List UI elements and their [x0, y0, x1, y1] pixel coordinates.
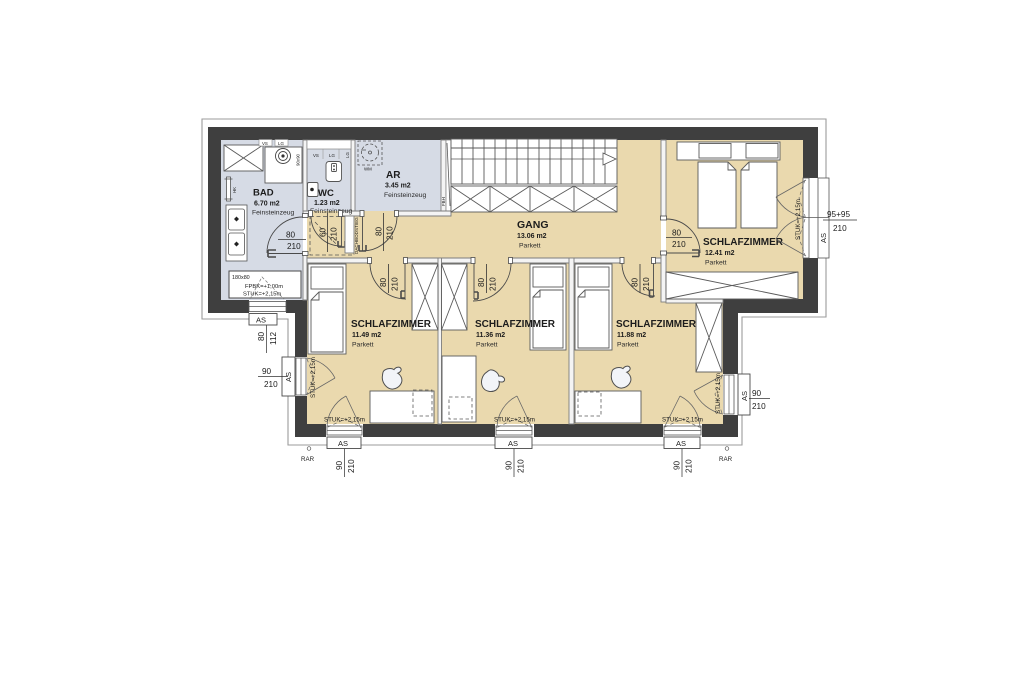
- svg-text:210: 210: [517, 459, 526, 473]
- svg-text:6.70 m2: 6.70 m2: [254, 201, 280, 208]
- svg-text:80: 80: [672, 229, 682, 238]
- svg-text:AS: AS: [256, 316, 266, 325]
- svg-text:AS: AS: [819, 233, 828, 243]
- svg-text:AS: AS: [284, 372, 293, 382]
- svg-text:1.23 m2: 1.23 m2: [314, 200, 340, 207]
- svg-text:VS: VS: [313, 153, 319, 158]
- svg-text:60: 60: [319, 227, 328, 237]
- svg-text:210: 210: [642, 277, 651, 291]
- svg-text:STUK=+2,15m: STUK=+2,15m: [795, 199, 802, 240]
- svg-text:90: 90: [505, 460, 514, 470]
- svg-text:VS: VS: [262, 141, 268, 146]
- svg-text:210: 210: [752, 402, 766, 411]
- svg-text:STUK=+2,15m: STUK=+2,15m: [662, 417, 703, 424]
- svg-text:210: 210: [489, 277, 498, 291]
- svg-text:STUK=+2,15m: STUK=+2,15m: [494, 417, 535, 424]
- svg-text:210: 210: [391, 277, 400, 291]
- svg-text:80: 80: [379, 277, 388, 287]
- svg-text:3.45 m2: 3.45 m2: [385, 183, 411, 190]
- svg-text:AS: AS: [508, 439, 518, 448]
- svg-text:SCHLAFZIMMER: SCHLAFZIMMER: [703, 237, 784, 248]
- svg-text:SCHLAFZIMMER: SCHLAFZIMMER: [475, 319, 556, 330]
- svg-text:90: 90: [335, 460, 344, 470]
- svg-text:SCHLAFZIMMER: SCHLAFZIMMER: [616, 319, 697, 330]
- svg-text:210: 210: [330, 227, 339, 241]
- svg-text:FBH: FBH: [441, 197, 446, 206]
- svg-text:WC: WC: [318, 188, 334, 199]
- svg-text:RAR: RAR: [719, 456, 733, 463]
- svg-text:Parkett: Parkett: [476, 342, 498, 349]
- svg-text:80: 80: [257, 331, 266, 341]
- svg-text:Feinsteinzeug: Feinsteinzeug: [310, 208, 353, 215]
- svg-text:FPBK=+1,00m: FPBK=+1,00m: [245, 284, 283, 290]
- svg-text:210: 210: [672, 240, 686, 249]
- svg-text:11.36 m2: 11.36 m2: [476, 332, 505, 339]
- svg-text:LG: LG: [345, 152, 350, 158]
- svg-text:STUK=+2,15m: STUK=+2,15m: [715, 373, 722, 414]
- svg-text:RAR: RAR: [301, 456, 315, 463]
- svg-text:Feinsteinzeug: Feinsteinzeug: [384, 192, 427, 199]
- svg-text:112: 112: [269, 332, 278, 345]
- svg-text:GANG: GANG: [517, 219, 549, 231]
- svg-text:WM: WM: [364, 167, 372, 172]
- svg-text:Parkett: Parkett: [705, 260, 727, 267]
- svg-text:90: 90: [752, 389, 762, 398]
- svg-text:210: 210: [287, 242, 301, 251]
- svg-text:LG: LG: [329, 153, 335, 158]
- svg-text:11.49 m2: 11.49 m2: [352, 332, 381, 339]
- svg-text:80: 80: [477, 277, 486, 287]
- svg-text:13.06 m2: 13.06 m2: [517, 233, 547, 240]
- svg-text:Feinsteinzeug: Feinsteinzeug: [252, 210, 295, 217]
- svg-text:210: 210: [347, 459, 356, 473]
- svg-text:Parkett: Parkett: [519, 243, 541, 250]
- svg-text:210: 210: [386, 226, 395, 240]
- svg-text:90: 90: [262, 367, 272, 376]
- svg-text:AS: AS: [740, 391, 749, 401]
- svg-text:SCHLAFZIMMER: SCHLAFZIMMER: [351, 319, 432, 330]
- svg-text:11.88 m2: 11.88 m2: [617, 332, 646, 339]
- svg-text:STUK=+2,15m: STUK=+2,15m: [324, 417, 365, 424]
- svg-text:80: 80: [375, 226, 384, 236]
- svg-text:AR: AR: [386, 170, 401, 181]
- svg-text:Parkett: Parkett: [352, 342, 374, 349]
- svg-text:12.41 m2: 12.41 m2: [705, 250, 735, 257]
- svg-text:BAD: BAD: [253, 188, 274, 199]
- svg-text:STUK=+2,15m: STUK=+2,15m: [243, 292, 282, 298]
- svg-text:HK: HK: [232, 187, 237, 193]
- svg-text:90: 90: [673, 460, 682, 470]
- svg-text:80: 80: [631, 277, 640, 287]
- svg-text:Parkett: Parkett: [617, 342, 639, 349]
- svg-text:210: 210: [833, 224, 847, 233]
- svg-text:210: 210: [264, 380, 278, 389]
- svg-text:80: 80: [286, 231, 296, 240]
- svg-text:90x90: 90x90: [296, 153, 301, 166]
- svg-text:180x80: 180x80: [232, 275, 250, 281]
- svg-text:AS: AS: [338, 439, 348, 448]
- svg-text:STUK=+2,15m: STUK=+2,15m: [310, 357, 317, 398]
- svg-text:210: 210: [685, 459, 694, 473]
- svg-text:AS: AS: [676, 439, 686, 448]
- svg-text:95+95: 95+95: [827, 210, 850, 219]
- svg-text:LG: LG: [278, 141, 284, 146]
